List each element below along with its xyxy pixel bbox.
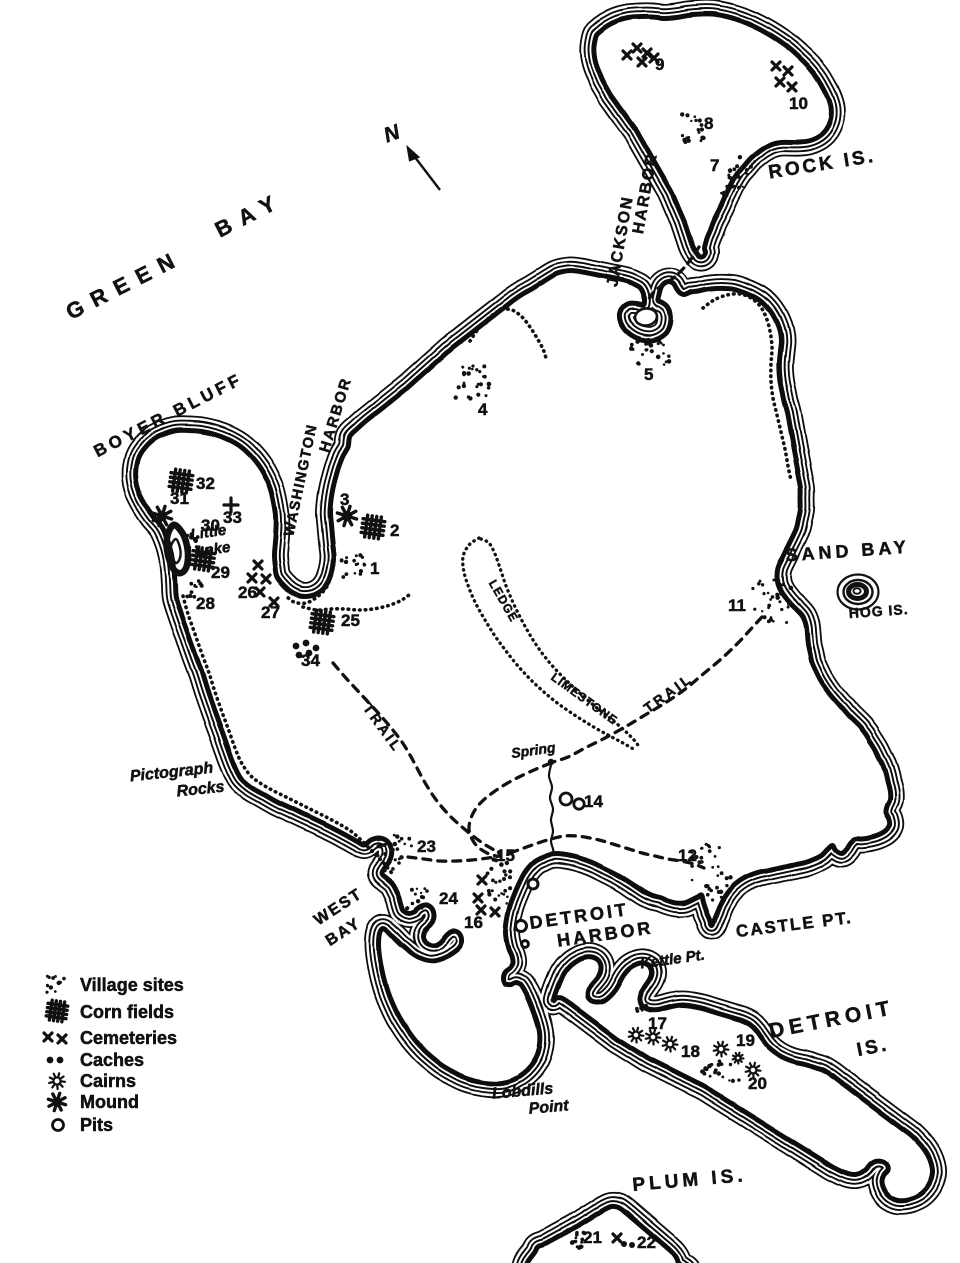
svg-text:12: 12 <box>678 846 697 865</box>
svg-text:27: 27 <box>261 603 280 622</box>
svg-text:19: 19 <box>736 1031 755 1050</box>
svg-text:2: 2 <box>390 521 399 540</box>
svg-text:Point: Point <box>528 1097 570 1117</box>
svg-text:26: 26 <box>238 583 257 602</box>
svg-text:21: 21 <box>583 1228 602 1247</box>
svg-text:22: 22 <box>637 1233 656 1252</box>
svg-text:Cemeteries: Cemeteries <box>80 1028 177 1048</box>
svg-text:17: 17 <box>648 1014 667 1033</box>
svg-text:20: 20 <box>748 1074 767 1093</box>
svg-text:18: 18 <box>681 1042 700 1061</box>
svg-text:34: 34 <box>301 651 320 670</box>
svg-text:11: 11 <box>728 596 746 615</box>
svg-text:9: 9 <box>655 55 664 74</box>
svg-text:23: 23 <box>417 837 436 856</box>
svg-text:14: 14 <box>584 792 603 811</box>
svg-text:8: 8 <box>704 114 713 133</box>
svg-text:29: 29 <box>211 563 230 582</box>
svg-text:Cairns: Cairns <box>80 1071 136 1091</box>
svg-text:Mound: Mound <box>80 1092 139 1112</box>
svg-text:15: 15 <box>496 846 515 865</box>
svg-text:5: 5 <box>644 365 653 384</box>
svg-text:Pits: Pits <box>80 1115 113 1135</box>
svg-text:4: 4 <box>478 400 488 419</box>
svg-text:32: 32 <box>196 474 215 493</box>
svg-text:3: 3 <box>340 490 349 509</box>
svg-text:31: 31 <box>170 489 189 508</box>
svg-text:Village sites: Village sites <box>80 975 184 995</box>
svg-text:28: 28 <box>196 594 215 613</box>
svg-text:Corn fields: Corn fields <box>80 1002 174 1022</box>
svg-text:1: 1 <box>370 559 379 578</box>
svg-text:33: 33 <box>223 508 242 527</box>
svg-text:25: 25 <box>341 611 360 630</box>
svg-text:Caches: Caches <box>80 1050 144 1070</box>
svg-text:16: 16 <box>464 913 483 932</box>
svg-text:24: 24 <box>439 889 458 908</box>
svg-text:7: 7 <box>710 156 719 175</box>
svg-text:10: 10 <box>789 94 808 113</box>
